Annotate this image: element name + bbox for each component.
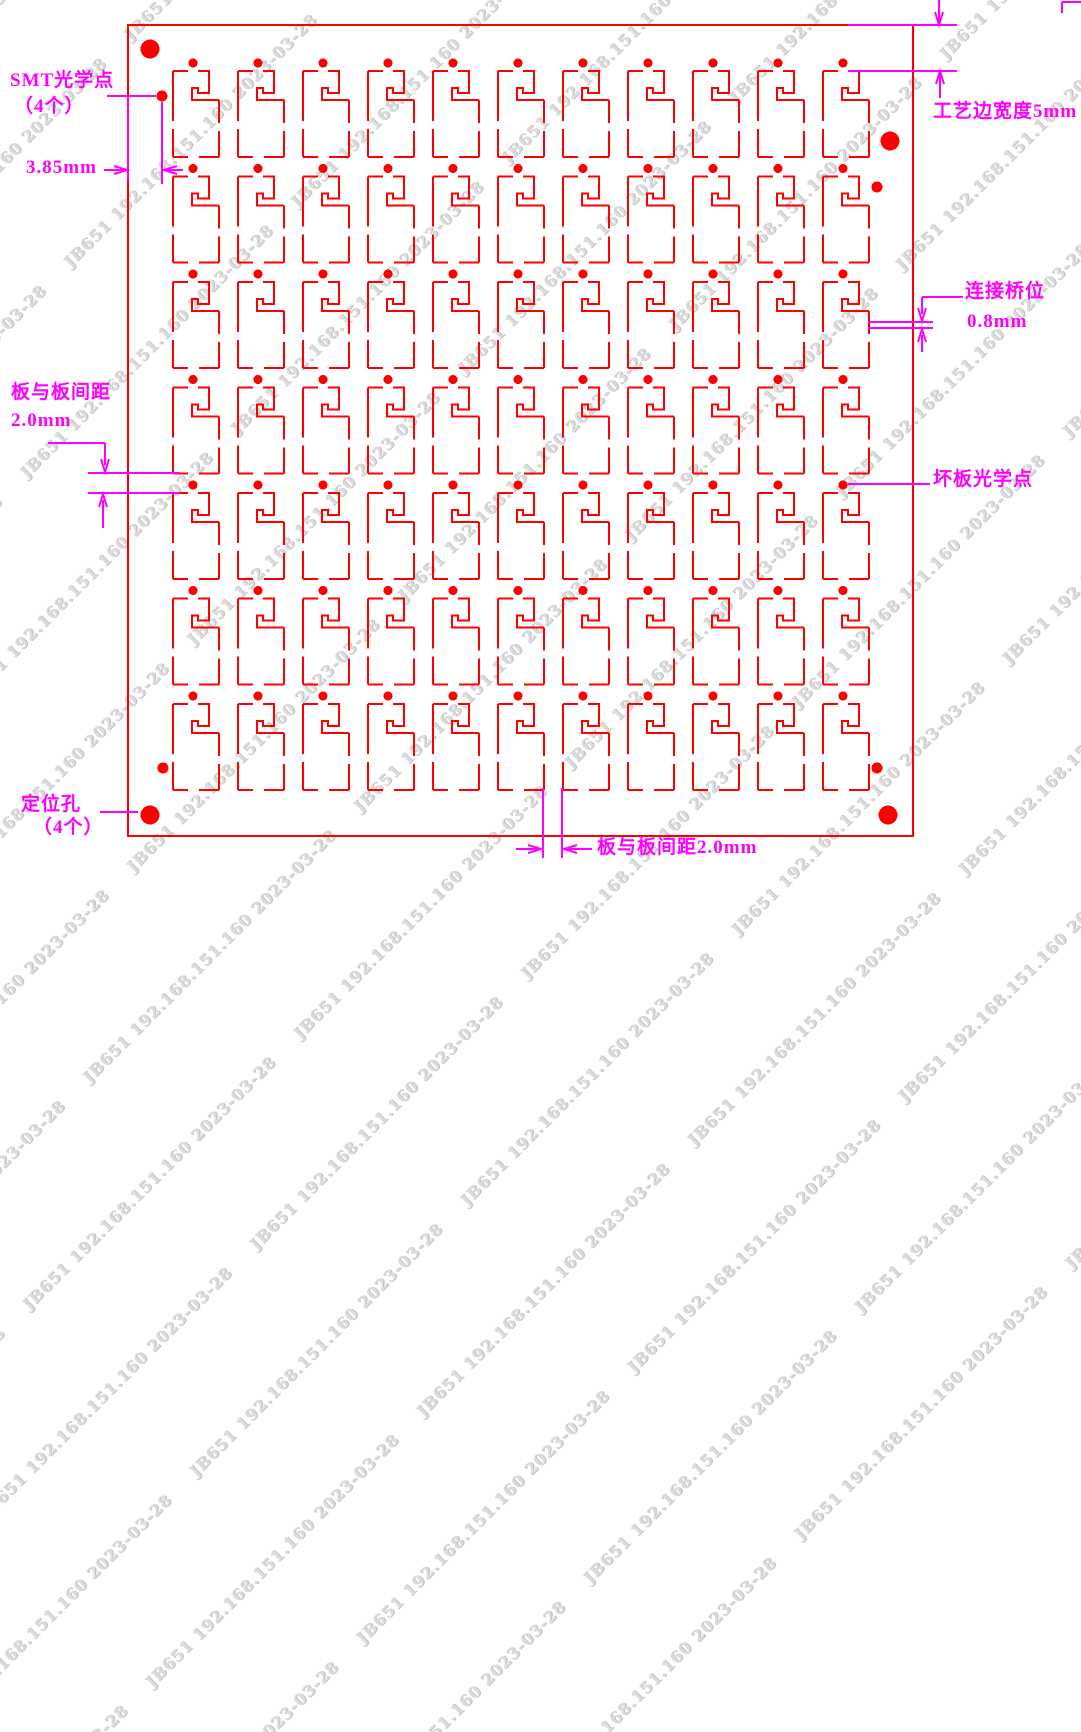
bridge-dot (254, 375, 263, 384)
board-unit (238, 71, 284, 157)
bridge-dot (384, 164, 393, 173)
bridge-dot (579, 59, 588, 68)
bridge-dot (644, 164, 653, 173)
board-unit (693, 282, 739, 368)
board-unit (368, 704, 414, 790)
board-unit (758, 177, 804, 263)
bridge-dot (839, 164, 848, 173)
board-unit (693, 177, 739, 263)
board-unit (758, 599, 804, 685)
board-unit (433, 493, 479, 579)
board-unit (693, 388, 739, 474)
bridge-dot (644, 481, 653, 490)
bridge-dot (709, 164, 718, 173)
board-unit (368, 282, 414, 368)
board-unit (303, 282, 349, 368)
cad-vector-layer (0, 0, 1081, 866)
bridge-dot (514, 59, 523, 68)
board-unit (693, 493, 739, 579)
bridge-dot (384, 270, 393, 279)
bridge-dot (839, 692, 848, 701)
locating-hole (141, 806, 160, 825)
board-unit (173, 282, 219, 368)
board-unit (563, 71, 609, 157)
board-unit (628, 388, 674, 474)
bridge-dot (839, 586, 848, 595)
board-unit (173, 388, 219, 474)
board-unit (303, 177, 349, 263)
bridge-dot (644, 375, 653, 384)
bridge-dot (384, 481, 393, 490)
board-unit (823, 599, 869, 685)
board-unit (173, 177, 219, 263)
board-unit (823, 388, 869, 474)
board-unit (368, 177, 414, 263)
board-unit (238, 599, 284, 685)
bridge-dot (319, 375, 328, 384)
bridge-dot (514, 270, 523, 279)
board-unit (433, 599, 479, 685)
bridge-dot (319, 692, 328, 701)
bridge-dot (774, 375, 783, 384)
smt-optical-point (157, 91, 168, 102)
bridge-dot (514, 375, 523, 384)
board-unit (823, 282, 869, 368)
bridge-dot (774, 59, 783, 68)
board-unit (368, 599, 414, 685)
bridge-dot (189, 481, 198, 490)
bridge-dot (449, 586, 458, 595)
board-unit (563, 282, 609, 368)
bridge-dot (579, 270, 588, 279)
board-unit (693, 71, 739, 157)
bridge-dot (644, 270, 653, 279)
board-unit (563, 599, 609, 685)
board-unit (823, 177, 869, 263)
board-unit (498, 177, 544, 263)
locating-hole (881, 132, 900, 151)
bridge-dot (254, 59, 263, 68)
board-unit (238, 493, 284, 579)
bridge-dot (384, 586, 393, 595)
bridge-dot (384, 692, 393, 701)
board-unit (238, 177, 284, 263)
board-unit (498, 388, 544, 474)
bridge-dot (189, 586, 198, 595)
bridge-dot (449, 481, 458, 490)
bridge-dot (449, 164, 458, 173)
board-unit (823, 493, 869, 579)
board-unit (758, 71, 804, 157)
locating-hole (141, 40, 160, 59)
bridge-dot (384, 59, 393, 68)
board-unit (433, 177, 479, 263)
board-unit (498, 704, 544, 790)
panel-outline (128, 25, 913, 836)
bridge-dot (709, 270, 718, 279)
bridge-dot (319, 481, 328, 490)
bridge-dot (774, 586, 783, 595)
bridge-dot (644, 692, 653, 701)
board-unit (173, 704, 219, 790)
smt-optical-point (872, 763, 883, 774)
bridge-dot (644, 59, 653, 68)
bridge-dot (189, 164, 198, 173)
bridge-dot (774, 481, 783, 490)
bridge-dot (579, 586, 588, 595)
bridge-dot (514, 164, 523, 173)
smt-optical-point (158, 763, 169, 774)
board-unit (628, 71, 674, 157)
board-unit (238, 388, 284, 474)
board-unit (758, 282, 804, 368)
bridge-dot (514, 586, 523, 595)
board-unit (693, 704, 739, 790)
bridge-dot (839, 375, 848, 384)
board-unit (498, 71, 544, 157)
board-unit (303, 388, 349, 474)
board-unit (433, 71, 479, 157)
bridge-dot (839, 270, 848, 279)
board-unit (628, 282, 674, 368)
board-unit (303, 599, 349, 685)
board-unit (823, 71, 869, 157)
bridge-dot (644, 586, 653, 595)
bridge-dot (384, 375, 393, 384)
locating-hole (879, 806, 898, 825)
board-unit (563, 493, 609, 579)
bridge-dot (709, 586, 718, 595)
board-unit (433, 282, 479, 368)
bridge-dot (189, 270, 198, 279)
board-unit (563, 177, 609, 263)
bridge-dot (189, 59, 198, 68)
bridge-dot (254, 481, 263, 490)
board-unit (173, 599, 219, 685)
bridge-dot (709, 481, 718, 490)
board-unit (823, 704, 869, 790)
board-unit (758, 493, 804, 579)
board-unit (628, 704, 674, 790)
bridge-dot (189, 375, 198, 384)
board-unit (628, 177, 674, 263)
board-unit (303, 493, 349, 579)
bridge-dot (254, 692, 263, 701)
bridge-dot (579, 164, 588, 173)
board-unit (498, 493, 544, 579)
bridge-dot (579, 692, 588, 701)
board-unit (563, 704, 609, 790)
board-unit (498, 282, 544, 368)
board-unit (238, 282, 284, 368)
bridge-dot (514, 692, 523, 701)
bridge-dot (254, 270, 263, 279)
board-unit (758, 388, 804, 474)
board-unit (628, 493, 674, 579)
bridge-dot (319, 164, 328, 173)
board-unit (303, 71, 349, 157)
bridge-dot (839, 59, 848, 68)
board-unit (173, 71, 219, 157)
bridge-dot (774, 270, 783, 279)
board-unit (368, 71, 414, 157)
board-unit (628, 599, 674, 685)
board-unit (758, 704, 804, 790)
board-unit (303, 704, 349, 790)
bridge-dot (774, 164, 783, 173)
bridge-dot (709, 692, 718, 701)
bridge-dot (319, 270, 328, 279)
bridge-dot (319, 59, 328, 68)
bridge-dot (449, 375, 458, 384)
pcb-panel-drawing: JB651 192.168.151.160 2023-03-28 JB651 1… (0, 0, 1081, 866)
board-unit (433, 388, 479, 474)
bridge-dot (579, 481, 588, 490)
bridge-dot (189, 692, 198, 701)
board-unit (563, 388, 609, 474)
board-unit (368, 493, 414, 579)
bridge-dot (579, 375, 588, 384)
board-unit (693, 599, 739, 685)
board-unit (498, 599, 544, 685)
bridge-dot (254, 164, 263, 173)
smt-optical-point (872, 182, 883, 193)
board-unit (368, 388, 414, 474)
board-unit (173, 493, 219, 579)
bridge-dot (514, 481, 523, 490)
bridge-dot (774, 692, 783, 701)
bridge-dot (449, 692, 458, 701)
bridge-dot (839, 481, 848, 490)
bridge-dot (449, 270, 458, 279)
bridge-dot (449, 59, 458, 68)
bridge-dot (319, 586, 328, 595)
bridge-dot (254, 586, 263, 595)
board-unit (238, 704, 284, 790)
bridge-dot (709, 375, 718, 384)
board-unit (433, 704, 479, 790)
bridge-dot (709, 59, 718, 68)
